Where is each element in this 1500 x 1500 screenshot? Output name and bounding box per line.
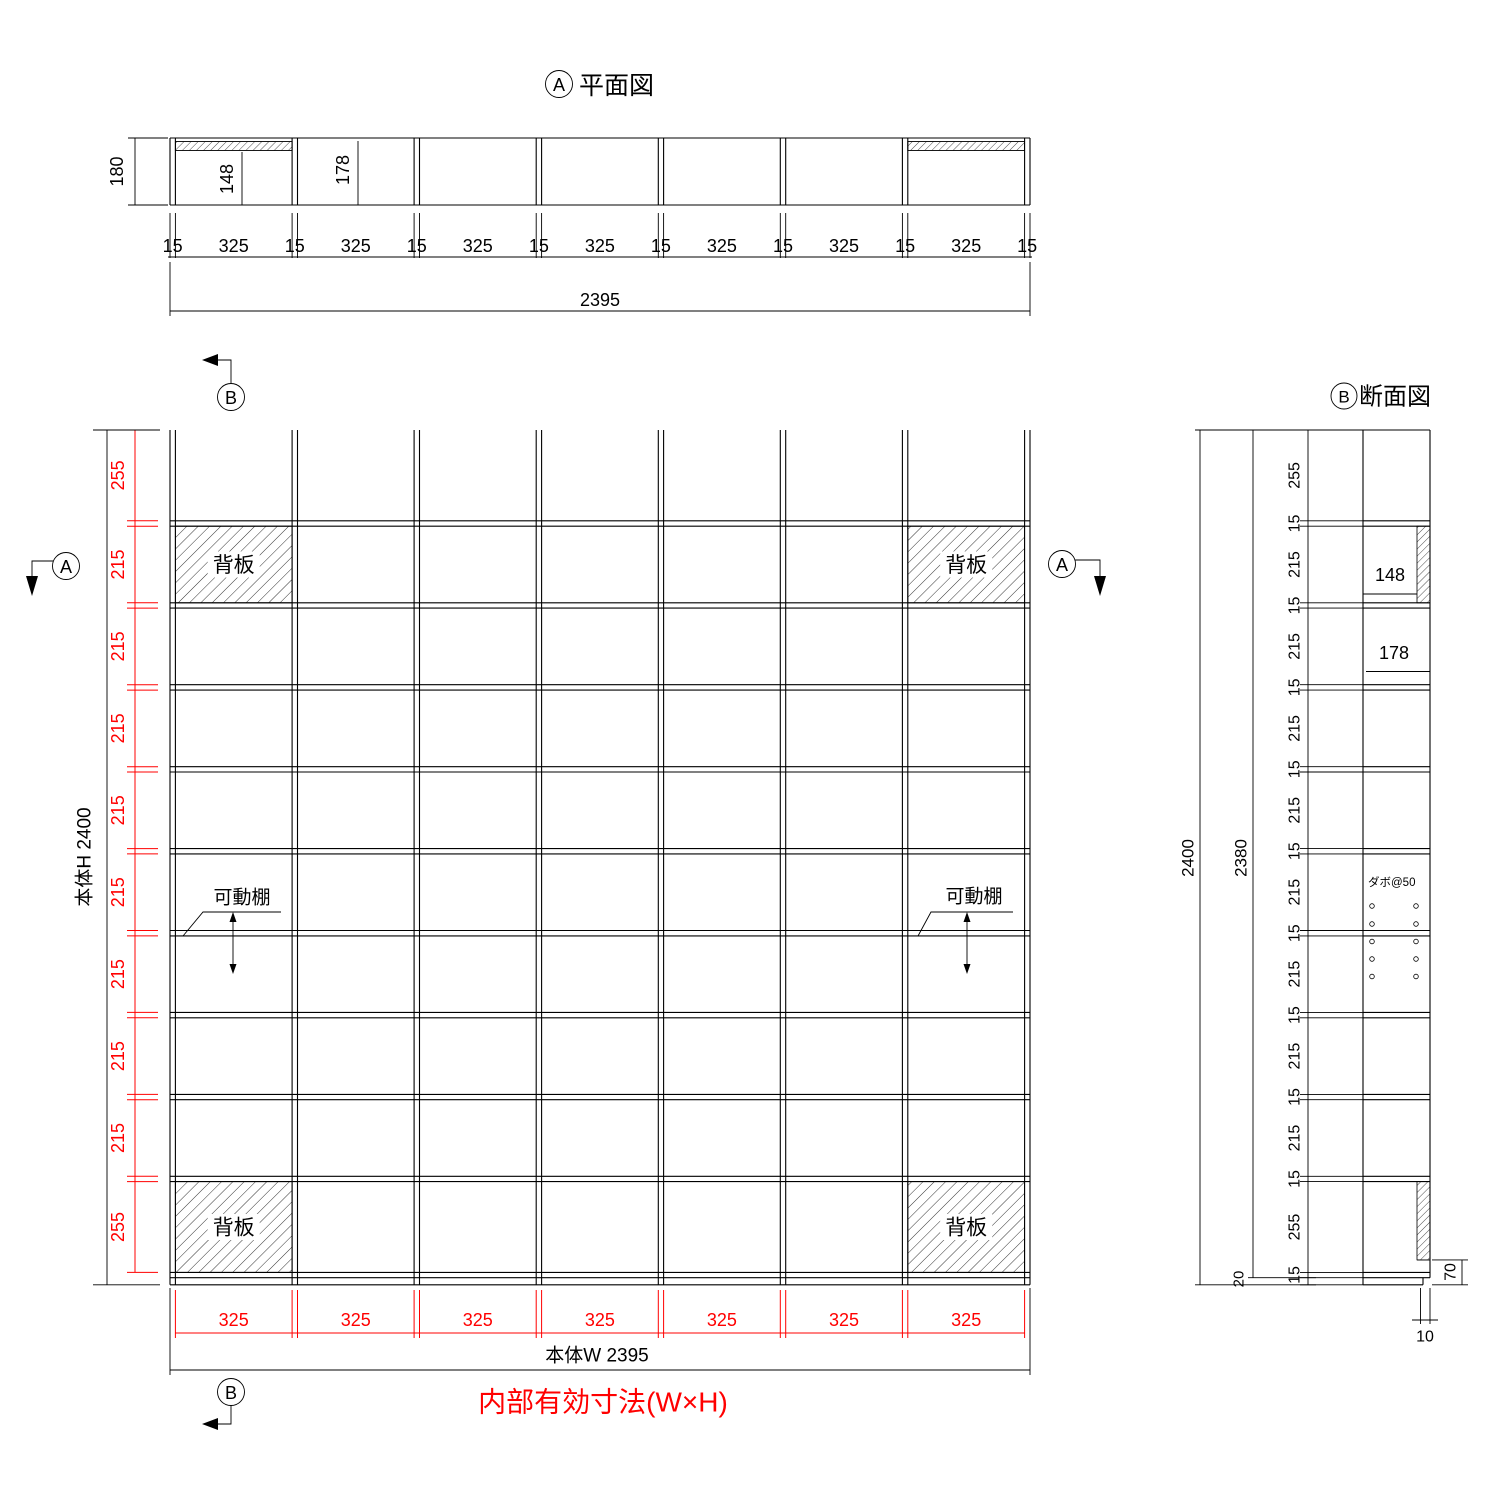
plan-chain-dim: 15 <box>1017 236 1037 256</box>
section-chain-dim: 15 <box>1287 597 1304 615</box>
plan-chain-dim: 15 <box>285 236 305 256</box>
back-panel-label: 背板 <box>213 554 255 577</box>
section-chain-dim: 255 <box>1287 1214 1304 1241</box>
back-panel-label: 背板 <box>213 1217 255 1240</box>
back-panel-label: 背板 <box>945 554 987 577</box>
plan-chain-dim: 15 <box>773 236 793 256</box>
section-open-cell-dim: 178 <box>1379 643 1409 663</box>
col-dim: 325 <box>463 1310 493 1330</box>
section-chain-dim: 215 <box>1287 797 1304 824</box>
section-chain-dim: 215 <box>1287 879 1304 906</box>
movable-shelf-label-left: 可動棚 <box>213 887 270 909</box>
inner-dimension-note: 内部有効寸法(W×H) <box>478 1387 728 1418</box>
section-chain-dim: 15 <box>1287 1006 1304 1024</box>
plan-chain-dim: 15 <box>529 236 549 256</box>
col-dim: 325 <box>219 1310 249 1330</box>
section-overall-dim: 2400 <box>1179 839 1198 877</box>
row-dim: 215 <box>108 713 128 743</box>
base-setback-dim: 10 <box>1416 1329 1434 1346</box>
row-dim: 215 <box>108 1123 128 1153</box>
row-dim: 215 <box>108 549 128 579</box>
marker-b-bottom-letter: B <box>225 1383 237 1403</box>
marker-a-left-letter: A <box>60 557 72 577</box>
plan-overall-dim: 2395 <box>580 290 620 310</box>
row-dim: 215 <box>108 631 128 661</box>
row-dim: 215 <box>108 1041 128 1071</box>
col-dim: 325 <box>585 1310 615 1330</box>
section-chain-dim: 15 <box>1287 1266 1304 1284</box>
col-dim: 325 <box>707 1310 737 1330</box>
cad-drawing-sheet: A 平面図 180 148 178 15 325 15 325 15 325 1… <box>0 0 1500 1500</box>
section-back-panel-hatch-bottom <box>1417 1182 1430 1260</box>
section-title: 断面図 <box>1359 384 1431 411</box>
section-chain-dim: 215 <box>1287 633 1304 660</box>
plan-depth-dim: 180 <box>107 156 127 186</box>
row-dim: 215 <box>108 959 128 989</box>
plan-chain-dim: 325 <box>951 236 981 256</box>
section-chain-dim: 15 <box>1287 924 1304 942</box>
section-chain-dim: 15 <box>1287 515 1304 533</box>
width-dim-label: 本体W 2395 <box>545 1345 648 1367</box>
section-chain-dim: 255 <box>1287 462 1304 489</box>
plan-chain-dim: 15 <box>651 236 671 256</box>
dowel-pitch-note: ダボ@50 <box>1368 875 1415 889</box>
plan-chain-dim: 325 <box>219 236 249 256</box>
marker-a-right-letter: A <box>1056 555 1068 575</box>
section-back-panel-hatch-top <box>1417 526 1430 603</box>
section-chain-dim: 15 <box>1287 1088 1304 1106</box>
back-panel-label: 背板 <box>945 1217 987 1240</box>
section-marker-letter: B <box>1338 388 1349 407</box>
plan-back-cell-dim: 148 <box>217 164 237 194</box>
section-chain-dim: 15 <box>1287 842 1304 860</box>
base-height-dim: 70 <box>1443 1263 1460 1281</box>
plan-chain-dim: 15 <box>407 236 427 256</box>
row-dim: 255 <box>108 460 128 490</box>
col-dim: 325 <box>341 1310 371 1330</box>
section-chain-dim: 215 <box>1287 551 1304 578</box>
plan-chain-dim: 15 <box>163 236 183 256</box>
plan-chain-dim: 325 <box>707 236 737 256</box>
col-dim: 325 <box>829 1310 859 1330</box>
section-inner-dim: 2380 <box>1232 839 1251 877</box>
section-chain-dim: 215 <box>1287 961 1304 988</box>
sheet-background <box>0 0 1500 1500</box>
movable-shelf-label-right: 可動棚 <box>945 886 1002 908</box>
plan-title: 平面図 <box>579 72 654 100</box>
plan-chain-dim: 15 <box>895 236 915 256</box>
section-chain-dim: 215 <box>1287 1043 1304 1070</box>
row-dim: 255 <box>108 1212 128 1242</box>
height-dim-label: 本体H 2400 <box>74 807 96 906</box>
row-dim: 215 <box>108 877 128 907</box>
section-chain-dim: 15 <box>1287 678 1304 696</box>
col-dim: 325 <box>951 1310 981 1330</box>
plan-back-panel-hatch-right <box>908 142 1025 151</box>
plan-chain-dim: 325 <box>585 236 615 256</box>
section-base-gap-dim: 20 <box>1231 1271 1248 1288</box>
section-back-cell-dim: 148 <box>1375 565 1405 585</box>
row-dim: 215 <box>108 795 128 825</box>
plan-marker-letter: A <box>553 75 565 95</box>
section-chain-dim: 215 <box>1287 715 1304 742</box>
plan-back-panel-hatch-left <box>175 142 292 151</box>
plan-open-cell-dim: 178 <box>333 155 353 185</box>
plan-chain-dim: 325 <box>829 236 859 256</box>
drawing: A 平面図 180 148 178 15 325 15 325 15 325 1… <box>0 0 1500 1500</box>
section-chain-dim: 215 <box>1287 1125 1304 1152</box>
plan-chain-dim: 325 <box>463 236 493 256</box>
plan-chain-dim: 325 <box>341 236 371 256</box>
marker-b-top-letter: B <box>225 388 237 408</box>
section-chain-dim: 15 <box>1287 1170 1304 1188</box>
section-chain-dim: 15 <box>1287 760 1304 778</box>
